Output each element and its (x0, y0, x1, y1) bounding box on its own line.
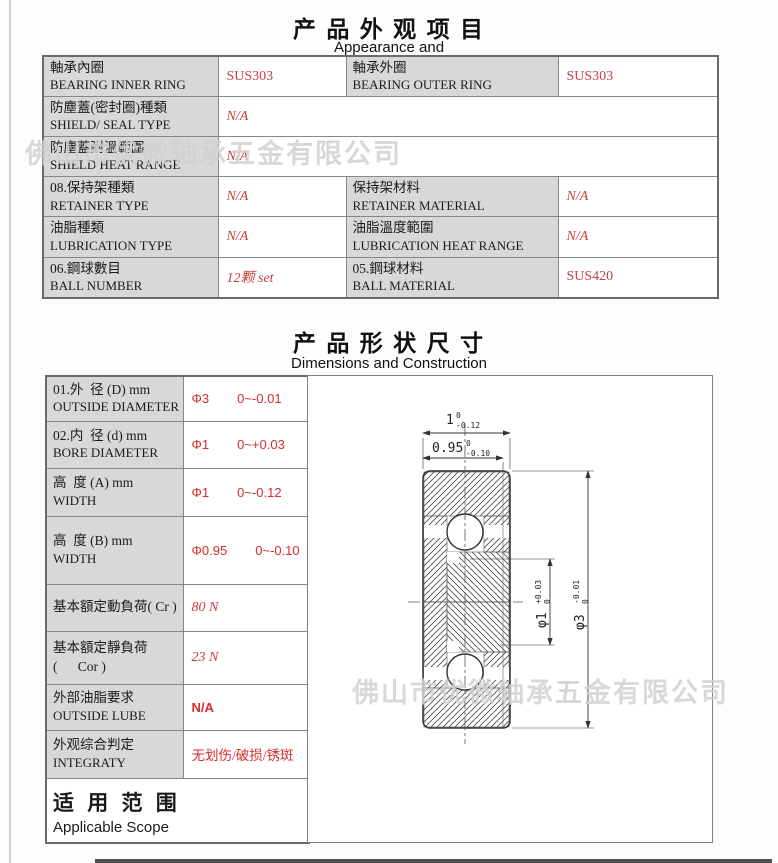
dim-width-b: 0.95 0 -0.10 (423, 439, 503, 470)
dim-a-main: 1 (446, 413, 454, 428)
label-zh: 08.保持架種類 (50, 179, 214, 197)
label-en: OUTSIDE LUBE (53, 708, 179, 725)
photo-bottom-edge (95, 859, 772, 863)
dim-value: Φ1 (192, 485, 210, 500)
label-en: BALL NUMBER (50, 278, 214, 295)
label-cell: 軸承內圈 BEARING INNER RING (43, 56, 218, 97)
table-row: 外部油脂要求 OUTSIDE LUBE N/A (46, 684, 309, 730)
label-cell: 防塵蓋(密封圈)種類 SHIELD/ SEAL TYPE (43, 97, 218, 137)
label-zh: 油脂種類 (50, 219, 214, 237)
label-zh: 外观综合判定 (53, 736, 179, 754)
label-en: SHIELD HEAT RANGE (50, 157, 214, 174)
label-cell: 01.外 径 (D) mm OUTSIDE DIAMETER (46, 376, 183, 421)
dim-tolerance: 0~-0.10 (255, 543, 299, 558)
dim-tolerance: 0~-0.12 (237, 485, 281, 500)
value-cell: N/A (558, 217, 718, 257)
dim-outer-sup: -0.01 (572, 580, 581, 604)
table-row: 高 度 (B) mm WIDTH Φ0.950~-0.10 (46, 516, 309, 584)
table-row: 适 用 范 围 Applicable Scope (46, 778, 309, 843)
value-cell: N/A (218, 217, 346, 257)
dim-b-main: 0.95 (432, 441, 463, 456)
label-cell: 油脂溫度範圍 LUBRICATION HEAT RANGE (346, 217, 558, 257)
label-cell: 06.鋼球數目 BALL NUMBER (43, 257, 218, 298)
value-cell: Φ10~-0.12 (183, 468, 309, 516)
table-row: 01.外 径 (D) mm OUTSIDE DIAMETER Φ30~-0.01 (46, 376, 309, 421)
scan-edge-line (9, 0, 11, 863)
label-zh: 06.鋼球數目 (50, 260, 214, 278)
label-en: RETAINER MATERIAL (353, 198, 554, 215)
label-en: BEARING INNER RING (50, 77, 214, 94)
label-cell: 保持架材料 RETAINER MATERIAL (346, 177, 558, 217)
label-cell: 基本額定靜負荷 ( Cor ) (46, 631, 183, 684)
dim-a-sub: -0.12 (456, 421, 480, 430)
dimensions-section-title: 产 品 形 状 尺 寸 (0, 324, 778, 358)
label-zh: 油脂溫度範圍 (353, 219, 554, 237)
dim-outer: φ3 -0.01 0 (512, 471, 594, 728)
label-en: LUBRICATION HEAT RANGE (353, 238, 554, 255)
table-row: 06.鋼球數目 BALL NUMBER 12颗 set 05.鋼球材料 BALL… (43, 257, 718, 298)
spec-sheet-page: 产 品 外 观 项 目 Appearance and 軸承內圈 BEARING … (0, 0, 778, 863)
label-zh: 防塵蓋耐溫範圍 (50, 139, 214, 157)
scope-title-en: Applicable Scope (47, 819, 308, 840)
dim-bore-sub: 0 (543, 599, 552, 604)
label-cell: 防塵蓋耐溫範圍 SHIELD HEAT RANGE (43, 137, 218, 177)
appearance-section-subtitle: Appearance and (0, 39, 778, 56)
table-row: 防塵蓋耐溫範圍 SHIELD HEAT RANGE N/A (43, 137, 718, 177)
label-en: OUTSIDE DIAMETER (53, 399, 179, 416)
dim-value: Φ0.95 (192, 543, 228, 558)
value-cell: 12颗 set (218, 257, 346, 298)
label-en: BORE DIAMETER (53, 445, 179, 462)
dim-bore-sup: +0.03 (534, 580, 543, 604)
bearing-drawing: 1 0 -0.12 0.95 0 -0.10 φ1 +0.03 (308, 376, 712, 842)
table-row: 軸承內圈 BEARING INNER RING SUS303 軸承外圈 BEAR… (43, 56, 718, 97)
table-row: 02.内 径 (d) mm BORE DIAMETER Φ10~+0.03 (46, 421, 309, 468)
label-zh: 基本額定靜負荷 (53, 639, 179, 657)
dim-value: Φ3 (192, 391, 210, 406)
dim-b-sup: 0 (466, 439, 471, 448)
label-zh: 保持架材料 (353, 179, 554, 197)
label-cell: 基本額定動負荷( Cr ) (46, 584, 183, 631)
bearing-cross-section (408, 424, 523, 744)
dim-value: Φ1 (192, 437, 210, 452)
label-zh: 01.外 径 (D) mm (53, 381, 179, 399)
label-zh2: ( Cor ) (53, 658, 179, 676)
table-row: 高 度 (A) mm WIDTH Φ10~-0.12 (46, 468, 309, 516)
value-cell: N/A (218, 137, 718, 177)
dim-tolerance: 0~-0.01 (237, 391, 281, 406)
dimensions-table: 01.外 径 (D) mm OUTSIDE DIAMETER Φ30~-0.01… (45, 375, 310, 844)
label-en: BEARING OUTER RING (353, 77, 554, 94)
label-zh: 高 度 (B) mm (53, 532, 179, 550)
label-zh: 軸承內圈 (50, 59, 214, 77)
label-en: RETAINER TYPE (50, 198, 214, 215)
label-cell: 高 度 (B) mm WIDTH (46, 516, 183, 584)
value-cell: N/A (183, 684, 309, 730)
value-cell: N/A (218, 177, 346, 217)
table-row: 08.保持架種類 RETAINER TYPE N/A 保持架材料 RETAINE… (43, 177, 718, 217)
label-en: LUBRICATION TYPE (50, 238, 214, 255)
dim-a-sup: 0 (456, 411, 461, 420)
label-en: SHIELD/ SEAL TYPE (50, 117, 214, 134)
label-cell: 軸承外圈 BEARING OUTER RING (346, 56, 558, 97)
label-zh: 基本額定動負荷( Cr ) (53, 598, 179, 616)
value-cell: SUS303 (558, 56, 718, 97)
label-cell: 05.鋼球材料 BALL MATERIAL (346, 257, 558, 298)
table-row: 基本額定動負荷( Cr ) 80 N (46, 584, 309, 631)
value-cell: 80 N (183, 584, 309, 631)
applicable-scope-cell: 适 用 范 围 Applicable Scope (46, 778, 309, 843)
value-cell: SUS420 (558, 257, 718, 298)
scope-title-zh: 适 用 范 围 (47, 781, 308, 819)
label-en: INTEGRATY (53, 755, 179, 772)
label-cell: 外部油脂要求 OUTSIDE LUBE (46, 684, 183, 730)
table-row: 防塵蓋(密封圈)種類 SHIELD/ SEAL TYPE N/A (43, 97, 718, 137)
dimensions-section-subtitle: Dimensions and Construction (0, 355, 778, 372)
label-zh: 防塵蓋(密封圈)種類 (50, 99, 214, 117)
dim-b-sub: -0.10 (466, 449, 490, 458)
drawing-panel: 1 0 -0.12 0.95 0 -0.10 φ1 +0.03 (307, 375, 713, 843)
table-row: 外观综合判定 INTEGRATY 无划伤/破损/锈斑 (46, 730, 309, 778)
value-cell: N/A (558, 177, 718, 217)
label-en: BALL MATERIAL (353, 278, 554, 295)
label-en: WIDTH (53, 551, 179, 568)
label-cell: 高 度 (A) mm WIDTH (46, 468, 183, 516)
dim-bore-main: φ1 (535, 612, 550, 628)
dim-tolerance: 0~+0.03 (237, 437, 285, 452)
value-cell: N/A (218, 97, 718, 137)
label-cell: 02.内 径 (d) mm BORE DIAMETER (46, 421, 183, 468)
label-cell: 08.保持架種類 RETAINER TYPE (43, 177, 218, 217)
value-cell: 无划伤/破损/锈斑 (183, 730, 309, 778)
dim-outer-sub: 0 (581, 599, 590, 604)
appearance-table: 軸承內圈 BEARING INNER RING SUS303 軸承外圈 BEAR… (42, 55, 719, 299)
value-cell: Φ0.950~-0.10 (183, 516, 309, 584)
label-cell: 油脂種類 LUBRICATION TYPE (43, 217, 218, 257)
label-zh: 外部油脂要求 (53, 689, 179, 707)
label-zh: 軸承外圈 (353, 59, 554, 77)
table-row: 油脂種類 LUBRICATION TYPE N/A 油脂溫度範圍 LUBRICA… (43, 217, 718, 257)
value-cell: Φ30~-0.01 (183, 376, 309, 421)
label-cell: 外观综合判定 INTEGRATY (46, 730, 183, 778)
label-zh: 05.鋼球材料 (353, 260, 554, 278)
label-zh: 高 度 (A) mm (53, 474, 179, 492)
table-row: 基本額定靜負荷 ( Cor ) 23 N (46, 631, 309, 684)
value-cell: Φ10~+0.03 (183, 421, 309, 468)
label-en: WIDTH (53, 493, 179, 510)
value-cell: SUS303 (218, 56, 346, 97)
label-zh: 02.内 径 (d) mm (53, 427, 179, 445)
value-cell: 23 N (183, 631, 309, 684)
dim-outer-main: φ3 (573, 614, 588, 630)
